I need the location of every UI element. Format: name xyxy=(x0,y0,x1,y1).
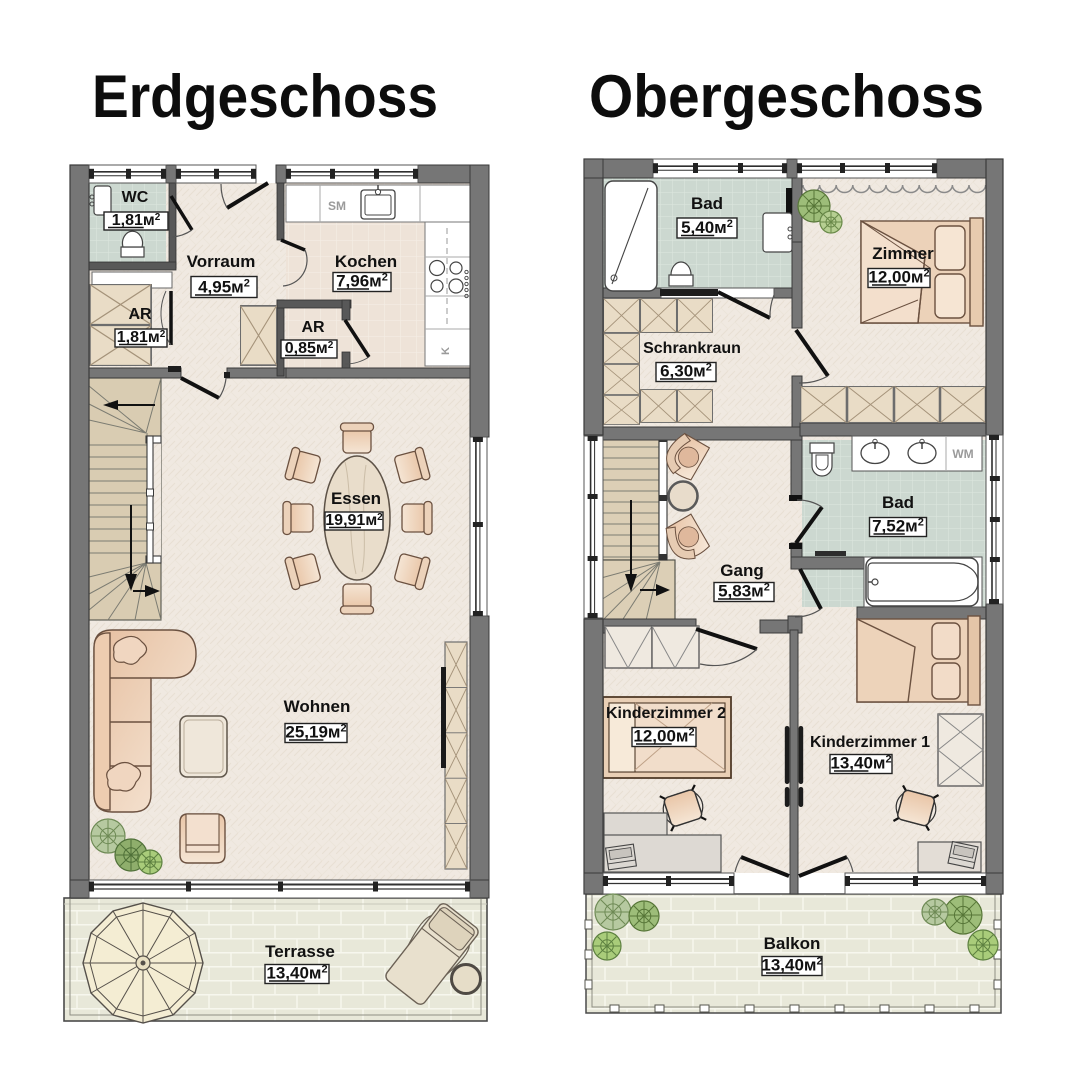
svg-text:Essen: Essen xyxy=(331,489,381,508)
svg-text:AR: AR xyxy=(301,319,325,336)
svg-text:WC: WC xyxy=(122,189,149,206)
svg-text:12,00м2: 12,00м2 xyxy=(633,727,694,746)
svg-text:Kinderzimmer 1: Kinderzimmer 1 xyxy=(810,734,930,751)
svg-text:Obergeschoss: Obergeschoss xyxy=(589,63,984,130)
svg-text:6,30м2: 6,30м2 xyxy=(660,362,712,381)
svg-text:Kochen: Kochen xyxy=(335,252,397,271)
svg-text:0,85м2: 0,85м2 xyxy=(285,340,334,357)
svg-text:K: K xyxy=(440,347,452,355)
svg-text:4,95м2: 4,95м2 xyxy=(198,278,250,297)
svg-text:1,81м2: 1,81м2 xyxy=(112,212,161,229)
svg-text:7,52м2: 7,52м2 xyxy=(872,517,924,536)
svg-text:13,40м2: 13,40м2 xyxy=(830,754,891,773)
svg-text:7,96м2: 7,96м2 xyxy=(336,272,388,291)
svg-text:AR: AR xyxy=(128,306,152,323)
svg-text:Bad: Bad xyxy=(882,493,914,512)
svg-text:Gang: Gang xyxy=(720,561,763,580)
svg-text:12,00м2: 12,00м2 xyxy=(868,268,929,287)
svg-text:Wohnen: Wohnen xyxy=(284,697,351,716)
svg-text:SM: SM xyxy=(328,199,346,213)
svg-text:Bad: Bad xyxy=(691,194,723,213)
svg-text:5,40м2: 5,40м2 xyxy=(681,218,733,237)
svg-text:Erdgeschoss: Erdgeschoss xyxy=(92,63,438,130)
svg-text:Vorraum: Vorraum xyxy=(187,252,256,271)
svg-text:1,81м2: 1,81м2 xyxy=(117,329,166,346)
svg-text:Terrasse: Terrasse xyxy=(265,942,335,961)
svg-text:19,91м2: 19,91м2 xyxy=(325,512,383,529)
svg-text:25,19м2: 25,19м2 xyxy=(285,723,346,742)
svg-text:13,40м2: 13,40м2 xyxy=(266,964,327,983)
svg-text:Balkon: Balkon xyxy=(764,934,821,953)
svg-text:5,83м2: 5,83м2 xyxy=(718,582,770,601)
svg-text:13,40м2: 13,40м2 xyxy=(761,956,822,975)
svg-text:Zimmer: Zimmer xyxy=(872,244,934,263)
svg-text:Schrankraun: Schrankraun xyxy=(643,340,741,357)
svg-text:Kinderzimmer 2: Kinderzimmer 2 xyxy=(606,705,726,722)
svg-text:WM: WM xyxy=(952,447,973,461)
